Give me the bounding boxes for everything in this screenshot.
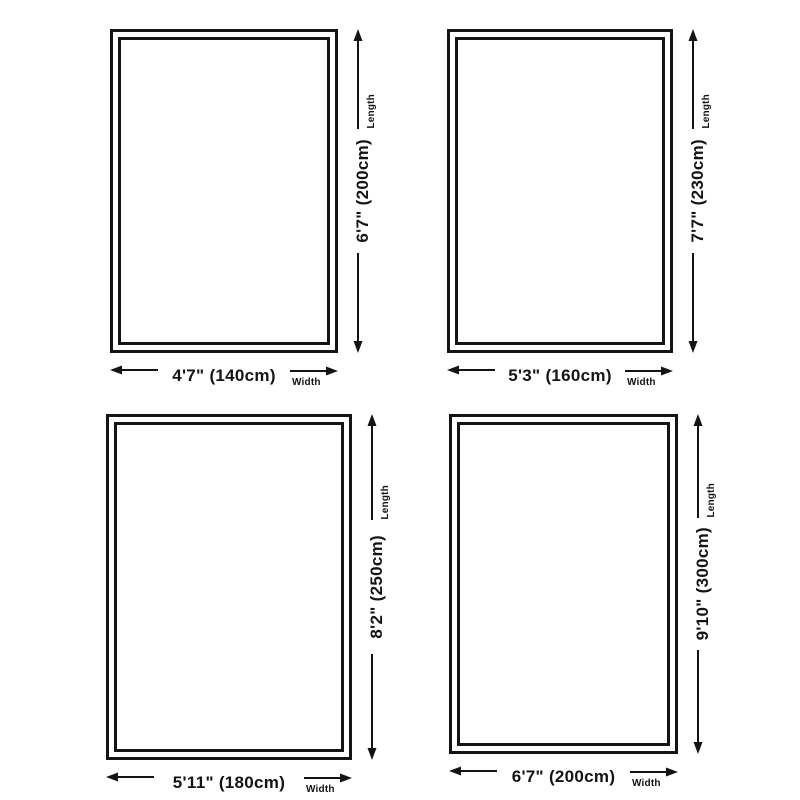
length-value: 8'2" (250cm) (367, 535, 387, 639)
length-axis-label: Length (380, 485, 391, 520)
width-arrow-right-group: Width (630, 766, 678, 789)
rug-outline (110, 29, 338, 353)
width-axis-label: Width (627, 377, 656, 388)
width-arrow-right-group: Width (625, 365, 673, 388)
width-dimension: 5'3" (160cm) Width (447, 361, 673, 391)
rug-inner-outline (457, 422, 670, 746)
arrow-left-icon (106, 771, 154, 783)
arrow-up-icon (687, 29, 699, 129)
width-value: 4'7" (140cm) (172, 366, 276, 386)
width-arrow-right-group: Width (290, 365, 338, 388)
arrow-up-icon (366, 414, 378, 520)
length-value: 6'7" (200cm) (353, 139, 373, 243)
rug-inner-outline (118, 37, 330, 345)
length-dimension: Length 6'7" (200cm) (352, 29, 392, 353)
rug-size-diagram-1: Length 6'7" (200cm) 4'7" (140cm) Width (110, 29, 338, 353)
arrow-left-icon (447, 364, 495, 376)
arrow-left-icon (110, 364, 158, 376)
width-value: 5'11" (180cm) (173, 773, 285, 793)
length-arrow-top-group: Length (687, 29, 712, 129)
rug-size-diagram-3: Length 8'2" (250cm) 5'11" (180cm) Width (106, 414, 352, 760)
rug-size-diagram-2: Length 7'7" (230cm) 5'3" (160cm) Width (447, 29, 673, 353)
arrow-down-icon (366, 654, 378, 760)
rug-inner-outline (114, 422, 344, 752)
width-arrow-right-group: Width (304, 772, 352, 795)
width-axis-label: Width (632, 778, 661, 789)
length-axis-label: Length (701, 94, 712, 129)
length-value: 9'10" (300cm) (693, 527, 713, 640)
length-arrow-top-group: Length (366, 414, 391, 520)
arrow-up-icon (352, 29, 364, 129)
width-axis-label: Width (292, 377, 321, 388)
rug-inner-outline (455, 37, 665, 345)
width-axis-label: Width (306, 784, 335, 795)
arrow-up-icon (692, 414, 704, 518)
rug-size-diagram-4: Length 9'10" (300cm) 6'7" (200cm) Width (449, 414, 678, 754)
length-dimension: Length 8'2" (250cm) (366, 414, 406, 760)
arrow-right-icon (304, 772, 352, 784)
width-dimension: 6'7" (200cm) Width (449, 762, 678, 792)
arrow-down-icon (352, 253, 364, 353)
length-axis-label: Length (366, 94, 377, 129)
length-dimension: Length 9'10" (300cm) (692, 414, 732, 754)
arrow-down-icon (687, 253, 699, 353)
width-value: 5'3" (160cm) (508, 366, 612, 386)
width-dimension: 5'11" (180cm) Width (106, 768, 352, 798)
arrow-right-icon (290, 365, 338, 377)
length-axis-label: Length (706, 483, 717, 518)
rug-outline (106, 414, 352, 760)
arrow-right-icon (630, 766, 678, 778)
width-dimension: 4'7" (140cm) Width (110, 361, 338, 391)
length-value: 7'7" (230cm) (688, 139, 708, 243)
rug-outline (449, 414, 678, 754)
arrow-down-icon (692, 650, 704, 754)
length-arrow-top-group: Length (352, 29, 377, 129)
rug-size-chart: Length 6'7" (200cm) 4'7" (140cm) Width (0, 0, 800, 800)
rug-outline (447, 29, 673, 353)
length-arrow-top-group: Length (692, 414, 717, 518)
width-value: 6'7" (200cm) (512, 767, 616, 787)
arrow-right-icon (625, 365, 673, 377)
arrow-left-icon (449, 765, 497, 777)
length-dimension: Length 7'7" (230cm) (687, 29, 727, 353)
